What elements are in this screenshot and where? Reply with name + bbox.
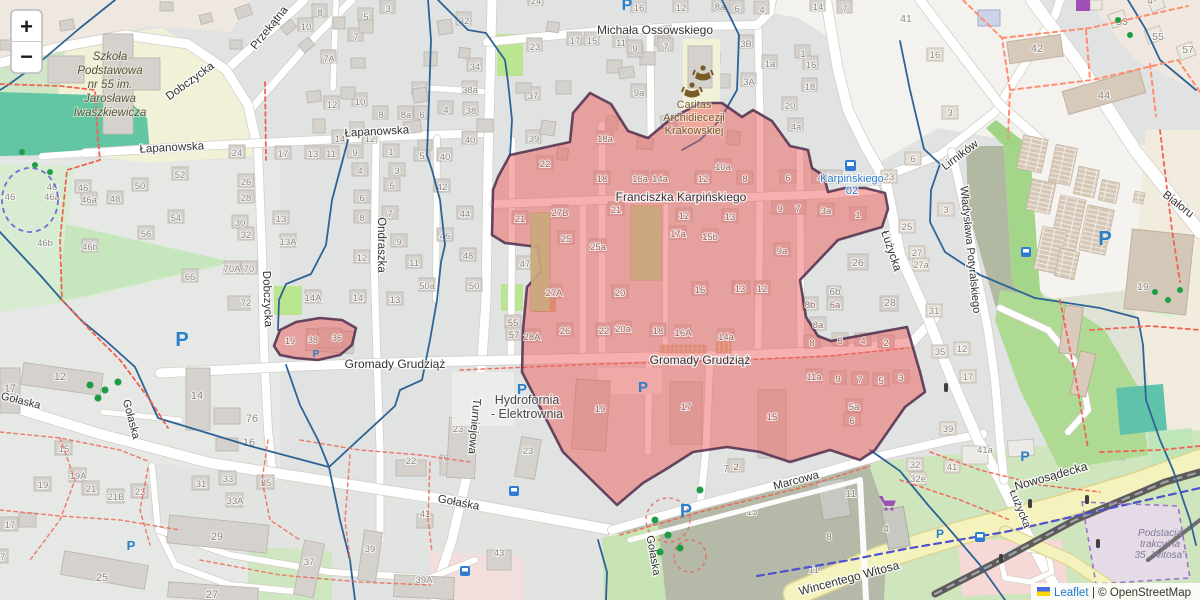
svg-text:11: 11: [846, 489, 857, 500]
svg-text:9: 9: [632, 44, 637, 55]
svg-text:21: 21: [86, 484, 97, 495]
svg-text:13: 13: [735, 284, 746, 295]
svg-text:10: 10: [301, 22, 312, 33]
svg-text:8: 8: [826, 532, 832, 543]
svg-text:6: 6: [419, 110, 424, 121]
svg-text:Archidiecezji: Archidiecezji: [663, 112, 725, 124]
svg-text:72: 72: [241, 298, 252, 309]
svg-text:16: 16: [695, 285, 706, 296]
svg-text:19: 19: [38, 480, 49, 491]
svg-text:15: 15: [587, 36, 598, 47]
svg-text:35 „Witosa”: 35 „Witosa”: [1134, 550, 1186, 561]
svg-text:nr 55 im.: nr 55 im.: [88, 79, 133, 91]
svg-text:46: 46: [78, 183, 89, 194]
svg-text:19: 19: [285, 336, 295, 346]
svg-text:41a: 41a: [977, 445, 994, 456]
svg-text:02: 02: [846, 185, 858, 197]
svg-text:7: 7: [353, 32, 358, 43]
svg-text:6: 6: [359, 193, 364, 204]
svg-text:35: 35: [935, 347, 946, 358]
svg-text:P: P: [1098, 228, 1111, 250]
svg-text:36: 36: [332, 333, 342, 343]
svg-text:46b: 46b: [82, 242, 98, 253]
svg-text:P: P: [313, 349, 320, 360]
svg-text:22: 22: [406, 456, 417, 467]
svg-text:Krakowskiej: Krakowskiej: [665, 125, 724, 137]
svg-text:13A: 13A: [280, 237, 298, 248]
svg-text:P: P: [680, 501, 692, 521]
svg-text:22: 22: [540, 159, 551, 170]
svg-text:30: 30: [235, 218, 246, 229]
svg-text:33: 33: [223, 474, 234, 485]
svg-text:15: 15: [767, 412, 778, 423]
svg-text:4: 4: [1147, 0, 1153, 7]
svg-text:Ondraszka: Ondraszka: [375, 217, 387, 273]
svg-text:26: 26: [560, 326, 571, 337]
svg-text:15b: 15b: [702, 232, 718, 243]
svg-text:12: 12: [698, 174, 709, 185]
svg-text:Gromady Grudziąż: Gromady Grudziąż: [650, 353, 751, 367]
svg-text:16A: 16A: [675, 328, 693, 339]
svg-text:3B: 3B: [740, 39, 752, 50]
svg-text:Karpińskiego: Karpińskiego: [820, 173, 884, 185]
svg-text:38: 38: [308, 335, 318, 345]
svg-text:7: 7: [663, 42, 668, 53]
svg-text:50: 50: [469, 281, 480, 292]
svg-text:41: 41: [947, 462, 958, 473]
svg-text:66: 66: [185, 272, 196, 283]
svg-text:6: 6: [849, 416, 854, 427]
svg-text:50: 50: [135, 181, 146, 192]
svg-text:7: 7: [842, 4, 847, 15]
svg-text:27: 27: [206, 589, 218, 600]
svg-text:54: 54: [171, 213, 182, 224]
svg-text:16: 16: [634, 3, 645, 14]
svg-text:27A: 27A: [546, 288, 564, 299]
svg-text:7: 7: [387, 209, 392, 220]
svg-text:27B: 27B: [552, 208, 569, 219]
svg-text:52: 52: [175, 170, 186, 181]
svg-text:55: 55: [508, 318, 519, 329]
svg-text:13: 13: [276, 214, 287, 225]
svg-text:23: 23: [884, 172, 895, 183]
svg-text:7: 7: [857, 375, 862, 386]
svg-text:+: +: [20, 14, 33, 39]
svg-text:2: 2: [733, 462, 738, 473]
svg-text:17: 17: [5, 520, 16, 531]
svg-text:14a: 14a: [718, 332, 735, 343]
svg-text:23: 23: [530, 42, 541, 53]
svg-text:13: 13: [390, 295, 401, 306]
svg-text:10a: 10a: [715, 162, 732, 173]
svg-text:6: 6: [734, 4, 739, 15]
svg-text:50a: 50a: [419, 281, 436, 292]
svg-text:20: 20: [615, 288, 626, 299]
svg-text:−: −: [20, 44, 33, 69]
svg-text:14: 14: [335, 134, 346, 145]
svg-text:24: 24: [531, 0, 542, 7]
svg-text:33A: 33A: [227, 496, 245, 507]
svg-text:9a: 9a: [634, 88, 645, 99]
svg-text:32: 32: [910, 460, 921, 471]
svg-text:17: 17: [570, 36, 581, 47]
svg-text:39: 39: [529, 134, 540, 145]
svg-text:21B: 21B: [108, 492, 125, 503]
svg-text:5: 5: [419, 151, 424, 162]
svg-text:16: 16: [930, 50, 941, 61]
svg-text:19: 19: [595, 404, 606, 415]
svg-text:14: 14: [353, 293, 364, 304]
svg-text:17: 17: [278, 149, 289, 160]
svg-text:25a: 25a: [590, 242, 607, 253]
svg-text:39: 39: [943, 424, 954, 435]
svg-text:6b: 6b: [829, 287, 841, 298]
svg-text:44: 44: [460, 209, 471, 220]
svg-text:44: 44: [1098, 90, 1110, 102]
svg-text:25: 25: [561, 234, 572, 245]
svg-text:Franciszka Karpińskiego: Franciszka Karpińskiego: [616, 190, 747, 204]
svg-text:5a: 5a: [849, 402, 860, 413]
svg-text:26: 26: [241, 177, 252, 188]
svg-text:3: 3: [385, 4, 390, 15]
svg-text:Podstawowa: Podstawowa: [77, 65, 142, 77]
svg-text:Iwaszkiewicza: Iwaszkiewicza: [74, 107, 147, 119]
svg-text:3a: 3a: [821, 206, 832, 217]
svg-text:8b: 8b: [805, 300, 816, 311]
svg-text:76: 76: [246, 413, 258, 425]
svg-text:21: 21: [611, 205, 622, 216]
svg-text:70: 70: [244, 264, 255, 275]
svg-text:6: 6: [785, 173, 790, 184]
svg-text:48: 48: [110, 194, 121, 205]
svg-text:14: 14: [191, 390, 203, 402]
svg-text:P: P: [638, 379, 648, 396]
svg-text:19: 19: [1137, 281, 1149, 293]
svg-text:8: 8: [317, 8, 322, 19]
svg-text:Szkoła: Szkoła: [93, 51, 128, 63]
svg-text:27: 27: [912, 248, 923, 259]
svg-text:10: 10: [355, 97, 366, 108]
svg-text:P: P: [175, 329, 188, 351]
svg-text:57: 57: [1182, 44, 1194, 56]
svg-text:11: 11: [616, 38, 626, 49]
svg-text:9: 9: [777, 204, 782, 215]
svg-text:15: 15: [59, 444, 70, 455]
svg-text:56: 56: [141, 229, 152, 240]
svg-text:17: 17: [963, 372, 974, 383]
svg-text:39: 39: [365, 544, 376, 555]
svg-text:4: 4: [443, 105, 448, 116]
svg-text:47: 47: [520, 259, 531, 270]
svg-text:8a: 8a: [401, 110, 412, 121]
svg-text:8a: 8a: [813, 320, 824, 331]
svg-text:25: 25: [902, 222, 913, 233]
svg-text:P: P: [517, 381, 527, 398]
svg-text:| © OpenStreetMap: | © OpenStreetMap: [1092, 587, 1191, 599]
svg-text:17: 17: [681, 402, 692, 413]
svg-text:7A: 7A: [323, 54, 335, 65]
svg-text:1: 1: [388, 147, 393, 158]
svg-text:37: 37: [0, 552, 5, 563]
svg-text:Michała Ossowskiego: Michała Ossowskiego: [597, 23, 713, 37]
svg-text:13: 13: [725, 212, 736, 223]
svg-text:31: 31: [196, 479, 207, 490]
svg-text:46a: 46a: [81, 195, 98, 206]
svg-text:24: 24: [232, 148, 243, 159]
svg-text:P: P: [622, 0, 633, 14]
svg-text:42: 42: [1031, 43, 1043, 55]
svg-text:11: 11: [409, 258, 419, 269]
svg-text:12: 12: [957, 344, 968, 355]
svg-text:11a: 11a: [806, 372, 822, 383]
svg-text:37: 37: [304, 557, 315, 568]
svg-text:12: 12: [327, 100, 338, 111]
svg-text:4: 4: [759, 5, 764, 16]
svg-text:4: 4: [883, 524, 889, 535]
svg-text:5: 5: [878, 376, 883, 387]
svg-text:28: 28: [884, 297, 896, 309]
svg-text:3: 3: [394, 166, 399, 177]
svg-text:Jarosława: Jarosława: [83, 93, 136, 105]
svg-text:21: 21: [515, 214, 526, 225]
svg-text:32: 32: [241, 230, 252, 241]
svg-text:3: 3: [947, 108, 952, 119]
svg-text:4: 4: [357, 166, 362, 177]
svg-text:14: 14: [813, 2, 824, 13]
svg-text:12: 12: [54, 371, 66, 383]
svg-text:20a: 20a: [615, 324, 632, 335]
svg-text:46b: 46b: [37, 238, 53, 249]
svg-text:8: 8: [742, 174, 747, 185]
svg-text:40: 40: [465, 135, 476, 146]
svg-text:9: 9: [396, 237, 401, 248]
svg-text:38a: 38a: [462, 85, 479, 96]
svg-text:6: 6: [837, 336, 842, 347]
svg-text:43: 43: [494, 548, 505, 559]
svg-text:18: 18: [805, 82, 816, 93]
svg-text:8: 8: [359, 213, 364, 224]
svg-text:70A: 70A: [224, 264, 242, 275]
svg-text:P: P: [936, 527, 944, 541]
svg-text:1: 1: [855, 210, 860, 221]
svg-text:34: 34: [470, 62, 481, 73]
svg-text:5: 5: [389, 181, 394, 192]
svg-text:12: 12: [757, 284, 768, 295]
svg-text:18: 18: [653, 326, 664, 337]
svg-text:1: 1: [800, 49, 805, 60]
svg-text:32e: 32e: [910, 474, 926, 485]
svg-text:13: 13: [308, 149, 319, 160]
svg-text:6: 6: [910, 154, 915, 165]
svg-text:28: 28: [241, 193, 252, 204]
svg-text:31: 31: [929, 306, 940, 317]
svg-text:P: P: [127, 538, 136, 553]
svg-text:16: 16: [806, 60, 817, 71]
svg-text:20: 20: [785, 101, 796, 112]
svg-text:9: 9: [835, 374, 840, 385]
svg-text:- Elektrownia: - Elektrownia: [491, 407, 563, 421]
svg-text:18a: 18a: [597, 134, 614, 145]
svg-text:1a: 1a: [765, 59, 776, 70]
svg-text:Gromady Grudziąż: Gromady Grudziąż: [345, 357, 446, 371]
svg-text:Podstacja: Podstacja: [1138, 528, 1182, 539]
svg-text:23: 23: [523, 446, 534, 457]
svg-text:48: 48: [463, 251, 474, 262]
svg-text:14A: 14A: [305, 293, 323, 304]
svg-text:29: 29: [211, 531, 223, 543]
svg-text:16a: 16a: [632, 174, 649, 185]
svg-text:18: 18: [597, 174, 608, 185]
svg-text:46: 46: [5, 192, 16, 203]
svg-text:3: 3: [943, 205, 948, 216]
svg-text:P: P: [1020, 448, 1029, 464]
svg-text:55: 55: [1152, 31, 1164, 43]
svg-text:Caritas: Caritas: [677, 99, 712, 111]
svg-text:12: 12: [676, 3, 687, 14]
svg-text:38: 38: [466, 106, 477, 117]
svg-text:22: 22: [599, 326, 610, 337]
svg-text:8: 8: [809, 338, 814, 349]
svg-text:4a: 4a: [791, 122, 802, 133]
svg-text:4: 4: [860, 336, 865, 347]
svg-text:41: 41: [900, 13, 912, 25]
svg-text:Leaflet: Leaflet: [1054, 587, 1089, 599]
svg-text:6a: 6a: [830, 300, 841, 311]
svg-text:3: 3: [898, 373, 903, 384]
svg-text:40: 40: [440, 152, 451, 163]
svg-text:25: 25: [96, 572, 108, 584]
svg-text:17a: 17a: [670, 229, 687, 240]
svg-text:2: 2: [883, 338, 888, 349]
svg-text:trakcyjna: trakcyjna: [1140, 539, 1180, 550]
svg-text:7: 7: [795, 204, 800, 215]
svg-text:28A: 28A: [524, 332, 542, 343]
svg-text:Hydrofornia: Hydrofornia: [495, 393, 560, 407]
svg-text:11: 11: [326, 149, 336, 160]
svg-text:27a: 27a: [913, 260, 930, 271]
svg-text:26: 26: [852, 257, 864, 269]
svg-text:9a: 9a: [777, 246, 788, 257]
svg-text:Dobczycka: Dobczycka: [260, 271, 274, 328]
svg-text:57: 57: [509, 330, 520, 341]
svg-text:12: 12: [679, 211, 690, 222]
svg-text:12: 12: [357, 253, 368, 264]
svg-text:9: 9: [352, 148, 357, 159]
svg-text:3A: 3A: [743, 77, 755, 88]
svg-text:8: 8: [378, 110, 383, 121]
svg-text:14a: 14a: [652, 174, 669, 185]
